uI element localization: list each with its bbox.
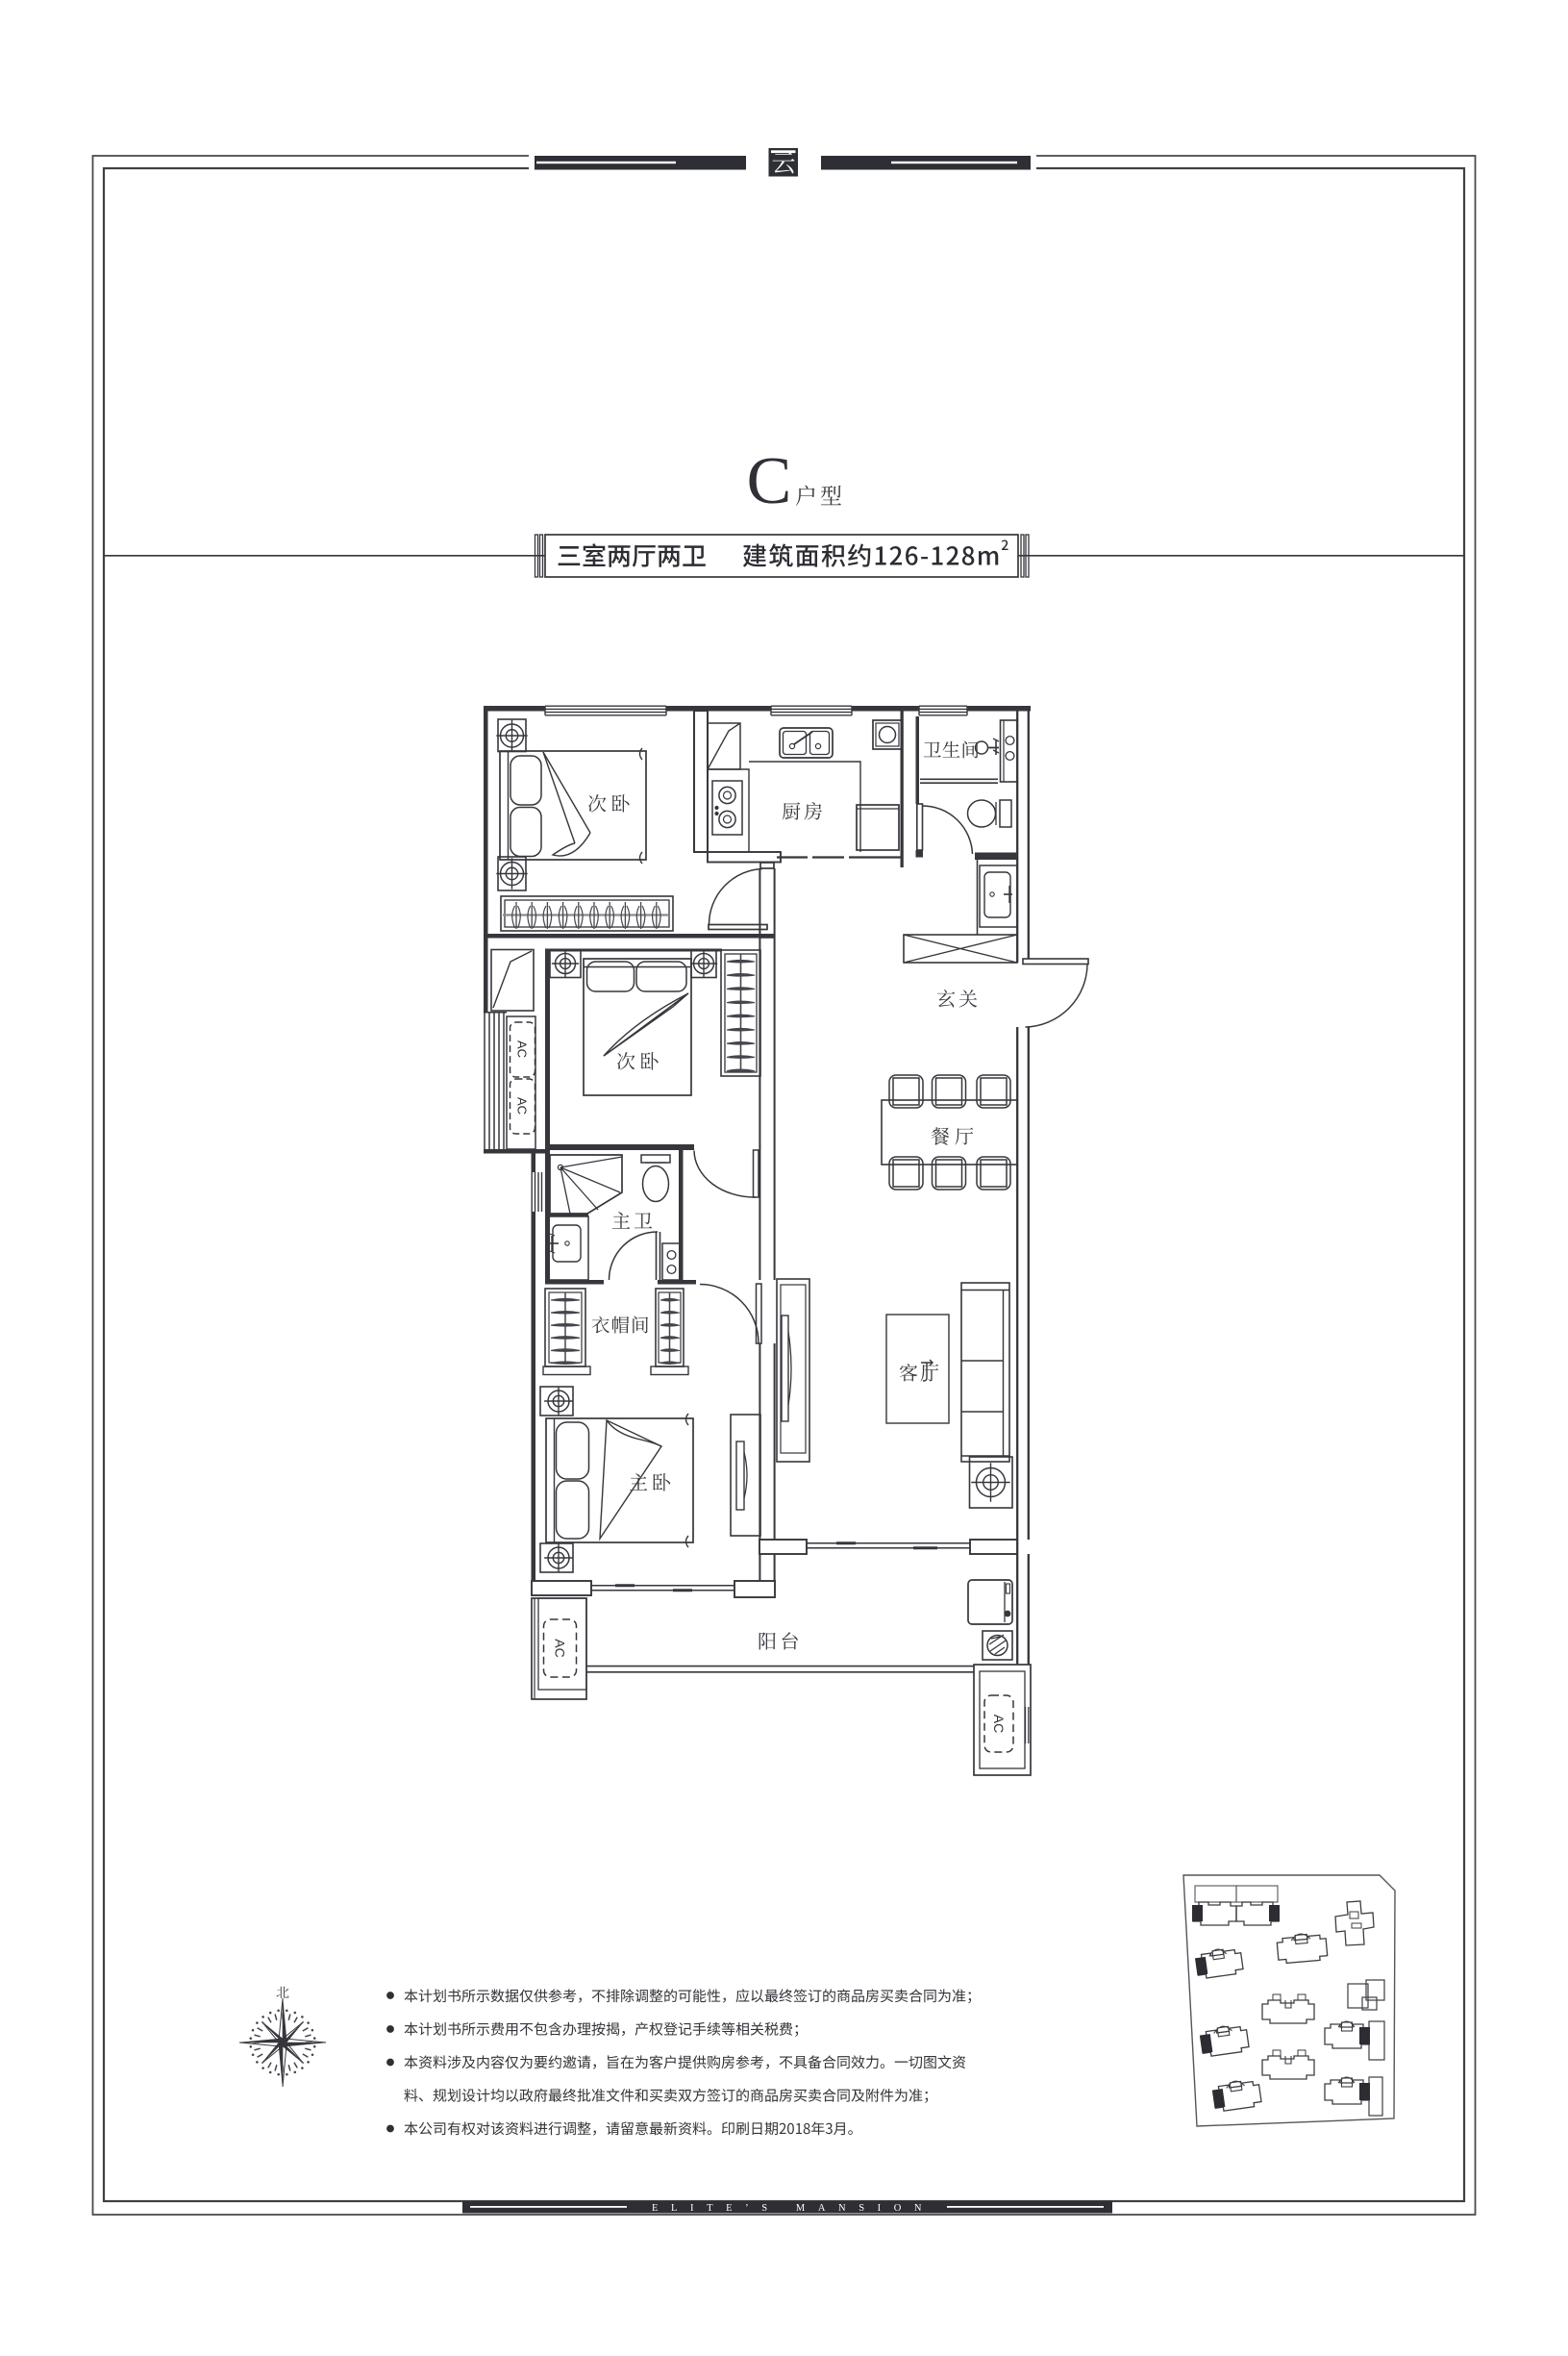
svg-text:ELITE’S MANSION: ELITE’S MANSION — [652, 2203, 934, 2214]
svg-text:AC: AC — [991, 1715, 1007, 1733]
svg-text:C: C — [747, 444, 792, 518]
svg-text:AC: AC — [553, 1639, 568, 1657]
svg-text:AC: AC — [515, 1097, 530, 1115]
svg-text:AC: AC — [515, 1040, 530, 1058]
